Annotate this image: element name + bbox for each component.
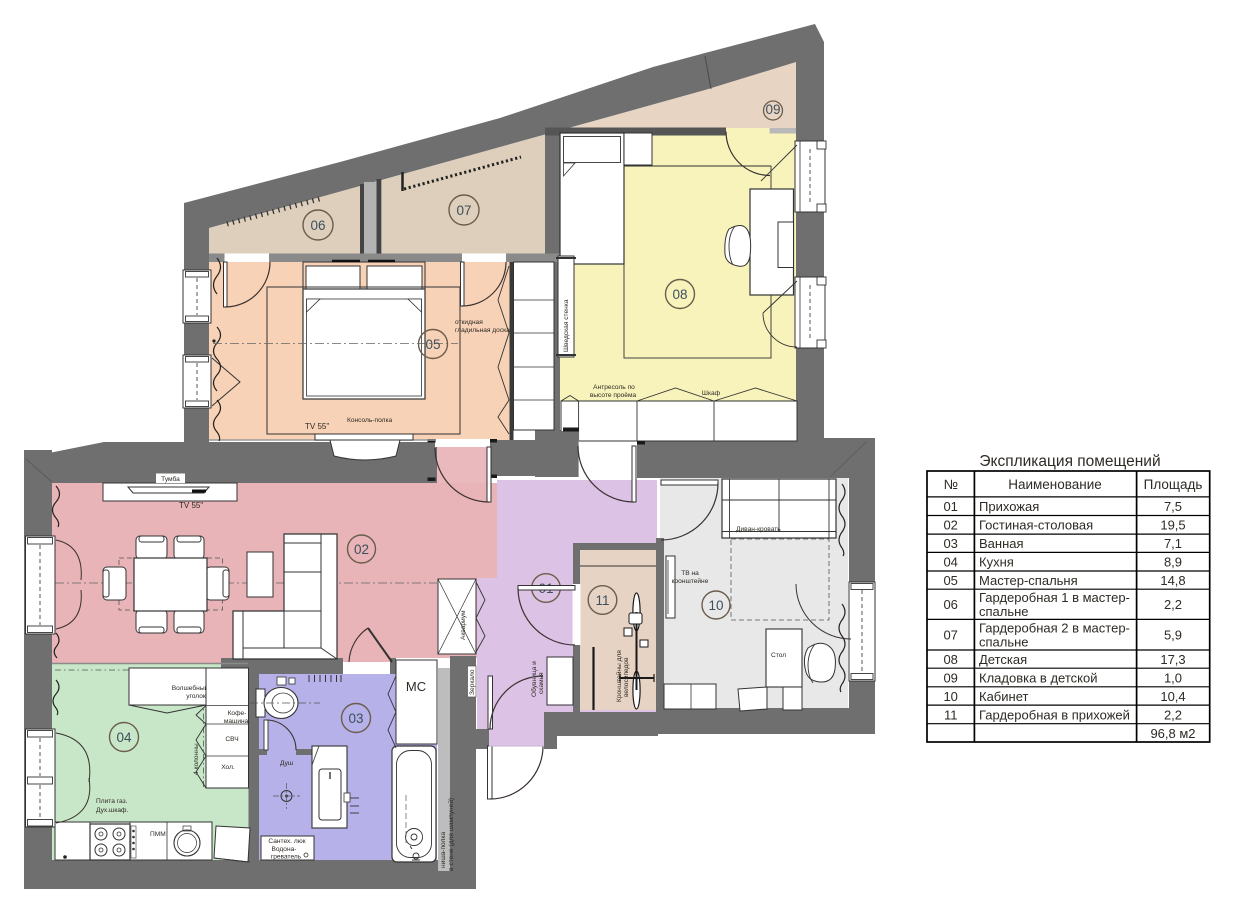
svg-text:96,8 м2: 96,8 м2 bbox=[1150, 726, 1195, 741]
svg-text:Гардеробная 1 в мастер-: Гардеробная 1 в мастер- bbox=[979, 590, 1130, 605]
svg-text:Экспликация помещений: Экспликация помещений bbox=[979, 453, 1160, 470]
svg-text:02: 02 bbox=[354, 542, 369, 557]
svg-text:машина.: машина. bbox=[224, 718, 250, 725]
svg-text:03: 03 bbox=[348, 711, 363, 726]
svg-text:в стене (для шампуней): в стене (для шампуней) bbox=[447, 798, 455, 871]
svg-text:высоте проёма: высоте проёма bbox=[590, 392, 637, 399]
svg-text:Волшебный: Волшебный bbox=[172, 684, 209, 692]
svg-text:кронштейне: кронштейне bbox=[672, 577, 709, 585]
svg-text:03: 03 bbox=[943, 536, 957, 551]
svg-text:09: 09 bbox=[765, 102, 780, 117]
svg-text:спальне: спальне bbox=[979, 604, 1029, 619]
svg-text:Кладовка в детской: Кладовка в детской bbox=[979, 671, 1097, 686]
svg-text:откидная: откидная bbox=[455, 319, 483, 326]
svg-text:СВЧ: СВЧ bbox=[225, 736, 238, 743]
svg-text:Тумба: Тумба bbox=[161, 475, 180, 483]
svg-text:ПММ: ПММ bbox=[150, 831, 166, 838]
svg-text:Сантех. люк: Сантех. люк bbox=[268, 838, 305, 845]
svg-text:2,2: 2,2 bbox=[1164, 597, 1182, 612]
svg-text:11: 11 bbox=[595, 593, 609, 608]
svg-text:Плита газ.: Плита газ. bbox=[96, 798, 128, 805]
svg-text:7,5: 7,5 bbox=[1164, 499, 1182, 514]
svg-text:2,2: 2,2 bbox=[1164, 708, 1182, 723]
svg-text:4 колонны: 4 колонны bbox=[193, 743, 200, 775]
svg-text:06: 06 bbox=[310, 218, 325, 233]
svg-text:Водона-: Водона- bbox=[272, 846, 297, 853]
svg-text:5,9: 5,9 bbox=[1164, 628, 1182, 643]
svg-text:7,1: 7,1 bbox=[1164, 536, 1182, 551]
svg-text:ТВ на: ТВ на bbox=[681, 570, 699, 577]
svg-text:Шведская стенка: Шведская стенка bbox=[563, 299, 570, 352]
svg-text:8,9: 8,9 bbox=[1164, 555, 1182, 570]
svg-text:велосипедов: велосипедов bbox=[623, 657, 630, 697]
svg-text:Душ: Душ bbox=[280, 760, 293, 767]
svg-text:Детская: Детская bbox=[979, 652, 1027, 667]
svg-text:Кухня: Кухня bbox=[979, 555, 1014, 570]
svg-text:11: 11 bbox=[944, 708, 958, 723]
svg-text:МС: МС bbox=[406, 679, 426, 694]
svg-text:07: 07 bbox=[943, 628, 957, 643]
svg-text:Гардеробная 2 в мастер-: Гардеробная 2 в мастер- bbox=[979, 621, 1130, 636]
svg-text:спальне: спальне bbox=[979, 635, 1029, 650]
svg-text:скамья: скамья bbox=[538, 672, 545, 694]
svg-text:07: 07 bbox=[456, 203, 471, 218]
svg-text:греватель: греватель bbox=[271, 854, 302, 861]
svg-text:Наименование: Наименование bbox=[1008, 477, 1102, 492]
svg-text:Диван-кровать: Диван-кровать bbox=[736, 526, 781, 533]
svg-text:Гардеробная в прихожей: Гардеробная в прихожей bbox=[979, 708, 1130, 723]
svg-text:Зеркало: Зеркало bbox=[469, 669, 476, 695]
svg-text:TV 55": TV 55" bbox=[305, 422, 329, 431]
svg-text:ниша-полка: ниша-полка bbox=[440, 832, 447, 868]
svg-text:Кабинет: Кабинет bbox=[979, 689, 1028, 704]
svg-text:10: 10 bbox=[708, 598, 723, 613]
svg-text:10,4: 10,4 bbox=[1160, 689, 1185, 704]
svg-text:№: № bbox=[943, 477, 957, 492]
svg-text:уголок: уголок bbox=[186, 693, 206, 700]
svg-text:Прихожая: Прихожая bbox=[979, 499, 1039, 514]
svg-text:Мастер-спальня: Мастер-спальня bbox=[979, 573, 1078, 588]
svg-text:06: 06 bbox=[943, 597, 957, 612]
svg-text:01: 01 bbox=[943, 499, 957, 514]
svg-text:17,3: 17,3 bbox=[1160, 652, 1185, 667]
svg-text:Консоль-полка: Консоль-полка bbox=[347, 417, 392, 424]
svg-text:Обувница и: Обувница и bbox=[530, 661, 538, 697]
svg-text:Кофе-: Кофе- bbox=[228, 710, 247, 717]
svg-text:Стол: Стол bbox=[771, 652, 786, 659]
svg-text:04: 04 bbox=[116, 730, 132, 745]
svg-text:14,8: 14,8 bbox=[1160, 573, 1185, 588]
svg-text:Шкаф: Шкаф bbox=[702, 390, 721, 397]
svg-text:Хол.: Хол. bbox=[221, 764, 235, 771]
svg-text:02: 02 bbox=[943, 518, 957, 533]
svg-text:05: 05 bbox=[943, 573, 957, 588]
svg-text:Аквариум: Аквариум bbox=[460, 610, 467, 640]
svg-text:04: 04 bbox=[943, 555, 957, 570]
svg-text:Антресоль по: Антресоль по bbox=[593, 384, 635, 391]
svg-text:гладильная доска: гладильная доска bbox=[455, 327, 510, 334]
svg-text:Площадь: Площадь bbox=[1144, 477, 1203, 492]
svg-text:19,5: 19,5 bbox=[1160, 518, 1185, 533]
svg-text:09: 09 bbox=[943, 671, 957, 686]
svg-text:Гостиная-столовая: Гостиная-столовая bbox=[979, 518, 1093, 533]
svg-text:Дух.шкаф.: Дух.шкаф. bbox=[96, 807, 128, 814]
svg-text:1,0: 1,0 bbox=[1164, 671, 1182, 686]
svg-text:05: 05 bbox=[425, 337, 440, 352]
svg-text:08: 08 bbox=[943, 652, 957, 667]
svg-text:Кронштейны для: Кронштейны для bbox=[615, 650, 623, 702]
svg-text:TV 55": TV 55" bbox=[179, 501, 203, 510]
svg-text:10: 10 bbox=[943, 689, 957, 704]
svg-text:Ванная: Ванная bbox=[979, 536, 1024, 551]
svg-text:08: 08 bbox=[672, 287, 687, 302]
